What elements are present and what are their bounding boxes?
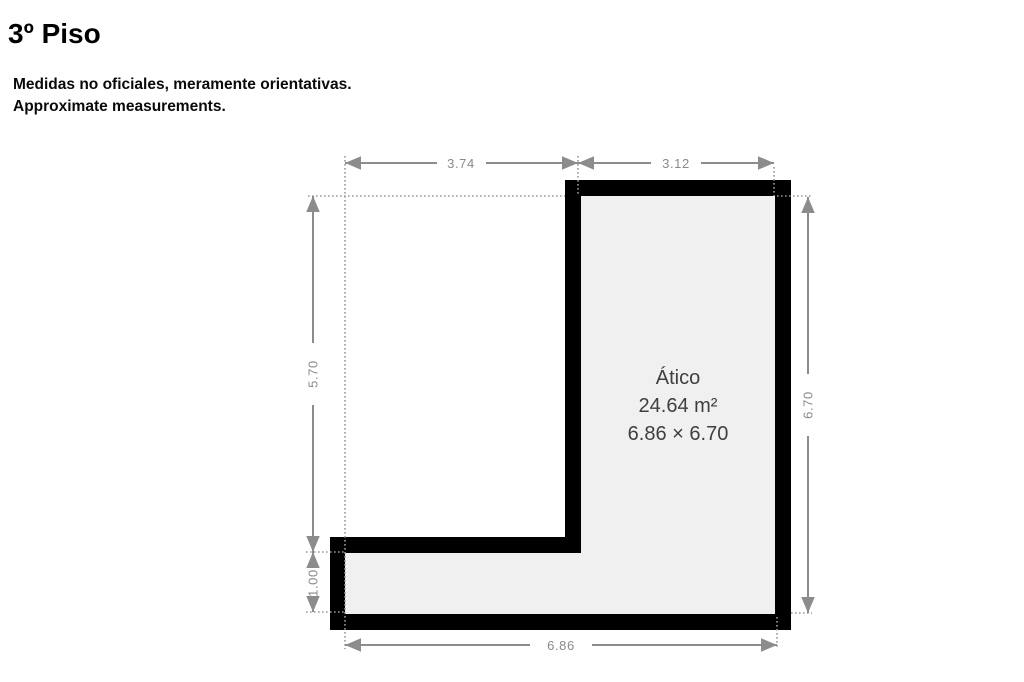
dim-label-top-right: 3.12	[662, 156, 690, 171]
wall-step	[330, 537, 581, 553]
dim-label-bottom: 6.86	[547, 638, 575, 653]
room-fill-lower	[345, 553, 775, 614]
wall-top	[565, 180, 791, 196]
wall-bottom	[330, 614, 791, 630]
wall-middle-vertical	[565, 180, 581, 553]
room-size: 6.86 × 6.70	[628, 423, 729, 445]
dimension-top-right: 3.12	[578, 156, 774, 171]
wall-left-lower	[330, 537, 345, 630]
dim-label-left-lower: 1.00	[306, 569, 321, 597]
room-name: Ático	[656, 366, 700, 389]
room-area: 24.64 m²	[639, 395, 718, 417]
floorplan-page: 3º Piso Medidas no oficiales, meramente …	[0, 0, 1024, 682]
dim-label-top-left: 3.74	[447, 156, 475, 171]
dimension-left-lower: 1.00	[306, 552, 321, 612]
wall-right	[775, 180, 791, 630]
dimension-bottom: 6.86	[345, 638, 777, 653]
dimension-right: 6.70	[801, 197, 816, 613]
dimension-left-upper: 5.70	[306, 196, 321, 552]
dim-label-right: 6.70	[801, 391, 816, 419]
dim-label-left-upper: 5.70	[306, 360, 321, 388]
floorplan-drawing: 3.74 3.12 5.70 1.00	[0, 0, 1024, 682]
dimension-top-left: 3.74	[345, 156, 578, 171]
